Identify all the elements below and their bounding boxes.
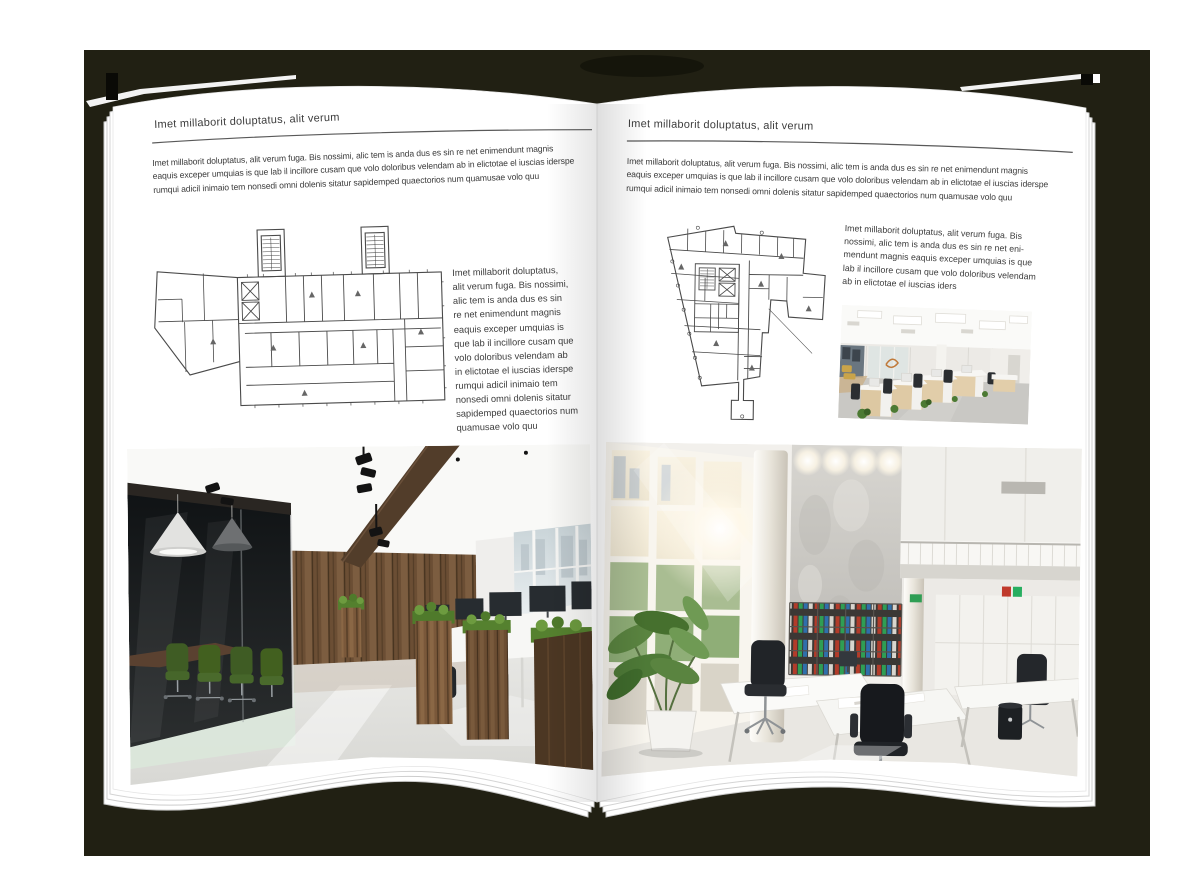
right-page-photo-atrium-office	[601, 442, 1082, 787]
floor-plan-left	[150, 222, 447, 412]
left-page-photo-loft-office	[127, 444, 593, 785]
floor-plan-right	[639, 215, 838, 424]
spine-top-shadow	[580, 55, 704, 77]
magazine-mockup-stage: Imet millaborit doluptatus, alit verum I…	[0, 0, 1200, 891]
right-page-photo-small-office	[838, 305, 1032, 425]
right-page-text-block: Imet millaborit doluptatus, alit verum f…	[842, 222, 1038, 297]
left-page-side-text: Imet millaborit doluptatus, alit verum f…	[452, 263, 579, 436]
right-page-header: Imet millaborit doluptatus, alit verum	[628, 118, 814, 133]
